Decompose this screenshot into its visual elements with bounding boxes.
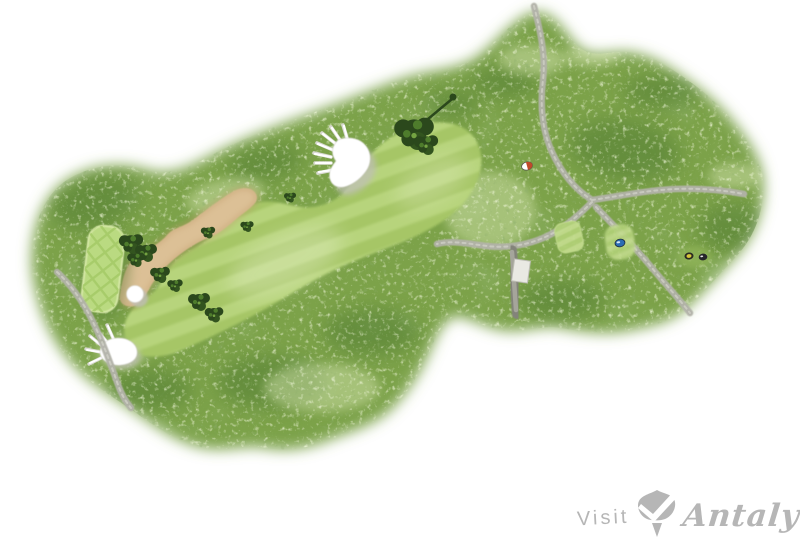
tulip-stem xyxy=(652,523,662,537)
tree-branch-tip xyxy=(450,94,457,101)
tulip-logo-icon xyxy=(634,489,680,541)
logo-visit-text: Visit xyxy=(576,505,630,531)
golf-hole-map-page: Visit Antalya xyxy=(0,0,800,557)
golf-hole-illustration xyxy=(0,0,800,557)
bunker-sand-face xyxy=(127,286,144,303)
visit-antalya-logo: Visit Antalya xyxy=(577,487,800,543)
logo-antalya-text: Antalya xyxy=(682,498,800,534)
bridge-deck xyxy=(512,259,531,283)
